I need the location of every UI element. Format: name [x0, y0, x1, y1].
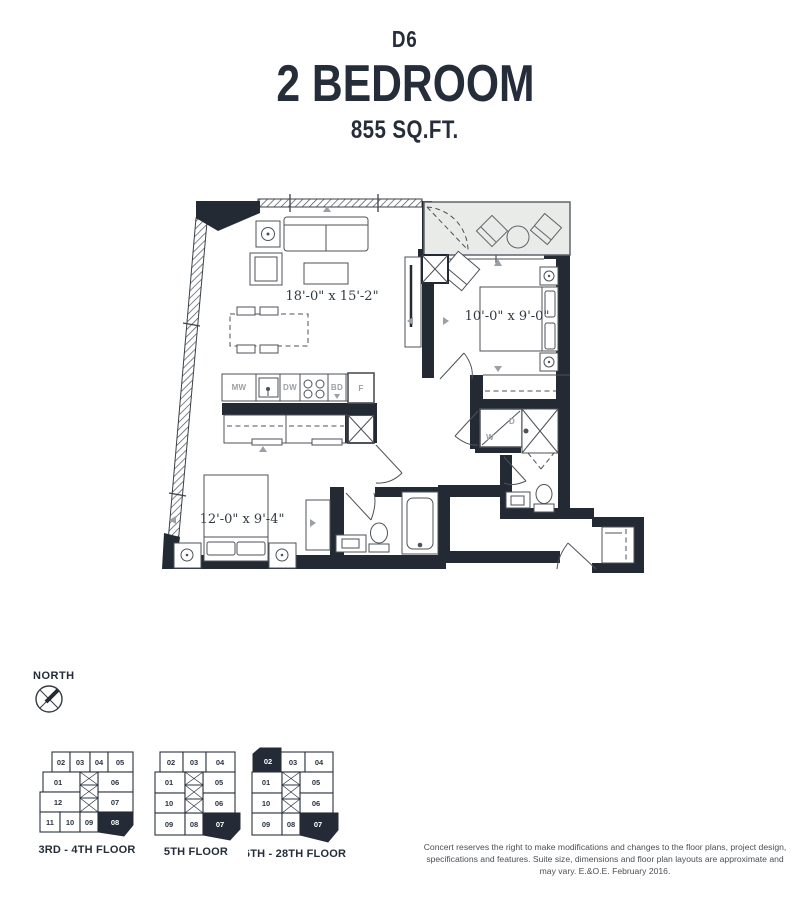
- ensuite-bathroom: [336, 492, 438, 554]
- svg-text:05: 05: [312, 778, 320, 787]
- svg-text:03: 03: [289, 758, 297, 767]
- floorplan-page: D6 2 BEDROOM 855 SQ.FT.: [0, 0, 802, 908]
- svg-text:09: 09: [262, 820, 270, 829]
- svg-text:05: 05: [116, 758, 124, 767]
- svg-text:01: 01: [262, 778, 270, 787]
- plan-title-block: D6 2 BEDROOM 855 SQ.FT.: [0, 28, 802, 145]
- keyplan-5th: 02 03 04 01 05 10 06 09 08 07 5TH FLOOR: [148, 740, 263, 865]
- svg-text:02: 02: [167, 758, 175, 767]
- kitchen: MW DW BD F: [222, 373, 374, 403]
- laundry-closet: W D: [455, 409, 522, 447]
- svg-text:06: 06: [312, 799, 320, 808]
- svg-text:05: 05: [215, 778, 223, 787]
- master-dim-label: 12'-0" x 9'-4": [200, 512, 285, 527]
- svg-text:04: 04: [216, 758, 225, 767]
- balcony: [424, 202, 570, 255]
- svg-text:09: 09: [85, 818, 93, 827]
- toilet: [536, 485, 552, 504]
- living-dim-label: 18'-0" x 15'-2": [285, 289, 378, 304]
- svg-text:08: 08: [287, 820, 295, 829]
- north-indicator: NORTH: [33, 670, 103, 721]
- master-door: [376, 445, 402, 473]
- shower: [522, 409, 558, 453]
- entry: [557, 527, 634, 569]
- washer-label: W: [486, 433, 494, 442]
- fridge-label: F: [358, 384, 363, 393]
- dishwasher-label: DW: [283, 383, 297, 392]
- elevator-core: [185, 772, 203, 813]
- svg-text:02: 02: [57, 758, 65, 767]
- keyplan-3rd-4th: 02 03 04 05 01 06 12 07 11 10 09 08 3RD …: [30, 740, 145, 865]
- master-closet: [224, 415, 374, 452]
- svg-text:10: 10: [66, 818, 74, 827]
- burners-label: BD: [331, 383, 343, 392]
- svg-text:12: 12: [54, 798, 62, 807]
- svg-text:04: 04: [315, 758, 324, 767]
- floor-plan-drawing: 18'-0" x 15'-2" MW DW BD F: [160, 193, 650, 593]
- svg-text:08: 08: [190, 820, 198, 829]
- unit-type-title: 2 BEDROOM: [0, 57, 802, 112]
- living-room: 18'-0" x 15'-2": [230, 206, 421, 353]
- bathroom-sink: [336, 535, 366, 552]
- svg-text:04: 04: [95, 758, 104, 767]
- dining-table: [230, 314, 308, 346]
- svg-text:06: 06: [111, 778, 119, 787]
- svg-text:01: 01: [165, 778, 173, 787]
- svg-text:03: 03: [76, 758, 84, 767]
- bedroom2-door: [440, 353, 464, 379]
- coffee-table: [304, 263, 348, 284]
- svg-text:08: 08: [111, 818, 119, 827]
- console-cabinet: [405, 257, 421, 347]
- bedroom-2: 10'-0" x 9'-0": [422, 251, 570, 391]
- svg-text:09: 09: [165, 820, 173, 829]
- bedroom2-dim-label: 10'-0" x 9'-0": [465, 309, 550, 324]
- dryer-label: D: [509, 417, 515, 426]
- wardrobe: [306, 500, 330, 550]
- svg-text:10: 10: [262, 799, 270, 808]
- keyplan-6th-28th: 02 03 04 01 05 10 06 09 08 07 6TH - 28TH…: [248, 740, 368, 870]
- elevator-core: [80, 772, 98, 812]
- bathroom-sink: [506, 492, 530, 508]
- keyplan-label: 6TH - 28TH FLOOR: [248, 848, 346, 860]
- svg-text:01: 01: [54, 778, 62, 787]
- toilet: [371, 523, 388, 543]
- north-label: NORTH: [33, 670, 103, 682]
- keyplan-label: 3RD - 4TH FLOOR: [38, 844, 135, 856]
- entry-closet: [602, 527, 634, 563]
- compass-icon: [33, 682, 67, 716]
- svg-text:07: 07: [216, 820, 224, 829]
- svg-text:03: 03: [190, 758, 198, 767]
- elevator-core: [282, 772, 300, 813]
- unit-size: 855 SQ.FT.: [0, 116, 802, 145]
- microwave-label: MW: [232, 383, 247, 392]
- ensuite-door: [346, 493, 371, 520]
- master-bedroom: 12'-0" x 9'-4": [169, 445, 402, 568]
- svg-text:02: 02: [264, 757, 272, 766]
- svg-text:07: 07: [314, 820, 322, 829]
- entry-door: [568, 543, 596, 569]
- unit-code: D6: [0, 28, 802, 51]
- svg-text:06: 06: [215, 799, 223, 808]
- svg-text:10: 10: [165, 799, 173, 808]
- svg-text:11: 11: [46, 818, 54, 827]
- svg-text:07: 07: [111, 798, 119, 807]
- disclaimer-text: Concert reserves the right to make modif…: [420, 841, 790, 877]
- keyplan-label: 5TH FLOOR: [164, 846, 228, 858]
